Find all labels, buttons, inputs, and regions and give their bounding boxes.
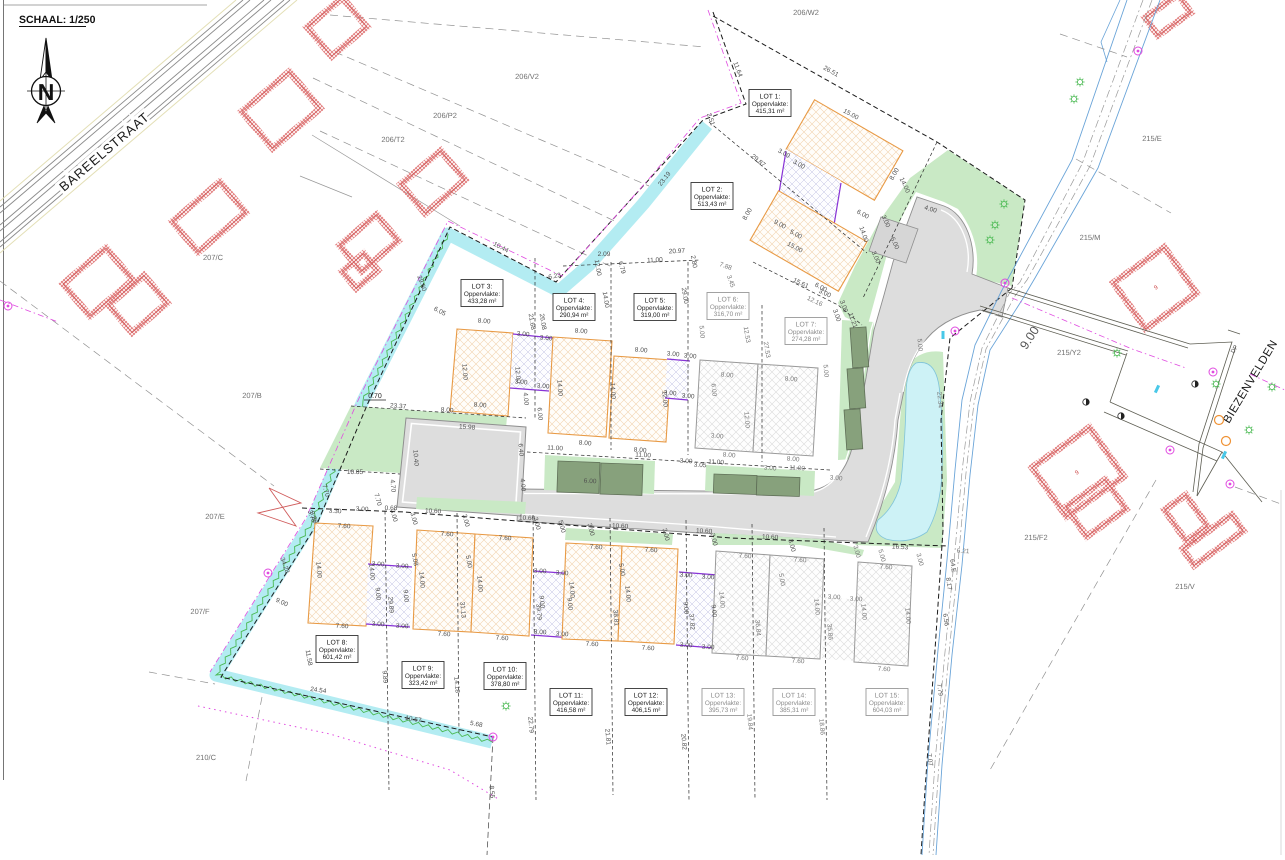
- svg-text:7.60: 7.60: [336, 623, 349, 631]
- svg-text:7.60: 7.60: [441, 531, 454, 539]
- svg-text:3.00: 3.00: [850, 596, 863, 604]
- svg-text:4.00: 4.00: [519, 478, 527, 491]
- svg-text:Oppervlakte:: Oppervlakte:: [553, 700, 589, 707]
- svg-text:6.00: 6.00: [584, 478, 597, 486]
- svg-text:14.00: 14.00: [623, 585, 631, 602]
- svg-text:5.00: 5.00: [698, 325, 706, 338]
- svg-text:604,03 m²: 604,03 m²: [873, 707, 902, 714]
- svg-text:3.00: 3.00: [396, 563, 409, 571]
- svg-text:LOT 1:: LOT 1:: [760, 94, 781, 101]
- svg-text:215/Y2: 215/Y2: [1057, 348, 1081, 357]
- svg-text:3.00: 3.00: [682, 393, 695, 401]
- svg-text:Oppervlakte:: Oppervlakte:: [710, 304, 746, 311]
- svg-text:6.00: 6.00: [710, 383, 718, 396]
- svg-text:7.60: 7.60: [739, 553, 752, 561]
- svg-text:11.00: 11.00: [647, 257, 664, 265]
- svg-text:22.34: 22.34: [935, 391, 943, 408]
- svg-text:3.00: 3.00: [537, 383, 550, 391]
- svg-text:8.00: 8.00: [478, 318, 491, 326]
- svg-text:215/V: 215/V: [1175, 582, 1195, 591]
- svg-text:LOT 9:: LOT 9:: [413, 666, 434, 673]
- svg-text:9.00: 9.00: [537, 595, 545, 609]
- svg-text:6.40: 6.40: [517, 443, 525, 456]
- svg-text:8.55: 8.55: [487, 785, 495, 799]
- svg-text:406,15 m²: 406,15 m²: [632, 707, 661, 714]
- svg-text:3.00: 3.00: [517, 331, 530, 339]
- svg-text:3.00: 3.00: [828, 594, 841, 602]
- svg-text:7.60: 7.60: [586, 641, 599, 649]
- svg-text:3.00: 3.00: [540, 335, 553, 343]
- svg-text:22.79: 22.79: [526, 716, 534, 733]
- svg-text:LOT 3:: LOT 3:: [472, 284, 493, 291]
- svg-text:3.00: 3.00: [396, 623, 409, 631]
- svg-text:20.97: 20.97: [669, 248, 686, 256]
- svg-text:20.82: 20.82: [679, 733, 687, 750]
- svg-text:LOT 2:: LOT 2:: [702, 187, 723, 194]
- svg-text:23.37: 23.37: [390, 402, 407, 410]
- svg-text:10.85: 10.85: [347, 469, 364, 476]
- svg-text:19.84: 19.84: [745, 713, 753, 730]
- svg-text:Oppervlakte:: Oppervlakte:: [752, 101, 788, 108]
- svg-text:290,94 m²: 290,94 m²: [560, 312, 589, 319]
- svg-text:18.86: 18.86: [817, 718, 825, 735]
- svg-text:210/C: 210/C: [196, 753, 217, 762]
- svg-text:207/E: 207/E: [205, 512, 225, 521]
- svg-text:14.00: 14.00: [608, 383, 616, 400]
- svg-text:Oppervlakte:: Oppervlakte:: [464, 291, 500, 298]
- svg-text:LOT 6:: LOT 6:: [718, 297, 739, 304]
- svg-text:3.00: 3.00: [711, 433, 724, 441]
- svg-text:14.00: 14.00: [417, 571, 425, 588]
- svg-text:Oppervlakte:: Oppervlakte:: [694, 194, 730, 201]
- svg-text:206/V2: 206/V2: [515, 72, 539, 81]
- svg-text:11.00: 11.00: [547, 445, 564, 453]
- svg-text:395,73 m²: 395,73 m²: [709, 707, 738, 714]
- svg-text:SCHAAL: 1/250: SCHAAL: 1/250: [19, 14, 96, 26]
- svg-text:5.00: 5.00: [822, 364, 830, 377]
- svg-text:LOT 11:: LOT 11:: [559, 693, 583, 700]
- svg-text:8.00: 8.00: [474, 402, 487, 410]
- svg-text:Oppervlakte:: Oppervlakte:: [405, 673, 441, 680]
- svg-text:Oppervlakte:: Oppervlakte:: [705, 700, 741, 707]
- svg-text:LOT 15:: LOT 15:: [875, 693, 900, 700]
- svg-text:3.00: 3.00: [534, 629, 547, 637]
- svg-text:9.89: 9.89: [380, 670, 388, 684]
- svg-text:31.13: 31.13: [458, 601, 466, 618]
- svg-text:37.82: 37.82: [687, 613, 695, 630]
- svg-text:5.00: 5.00: [915, 338, 923, 352]
- svg-text:9.00: 9.00: [709, 604, 717, 618]
- svg-text:11.00: 11.00: [635, 452, 652, 460]
- svg-text:7.60: 7.60: [878, 666, 891, 674]
- svg-text:601,42 m²: 601,42 m²: [323, 654, 352, 661]
- svg-text:14.18: 14.18: [452, 676, 460, 693]
- svg-text:9.00: 9.00: [681, 601, 689, 615]
- svg-text:207/B: 207/B: [242, 391, 262, 400]
- svg-text:36.84: 36.84: [753, 619, 761, 636]
- svg-text:10.60: 10.60: [425, 508, 442, 516]
- svg-text:14.00: 14.00: [555, 380, 563, 397]
- svg-text:15.98: 15.98: [459, 423, 476, 431]
- svg-text:8.00: 8.00: [635, 347, 648, 355]
- svg-text:12.00: 12.00: [460, 364, 468, 381]
- svg-text:N: N: [38, 79, 55, 105]
- svg-text:7.60: 7.60: [338, 523, 351, 531]
- svg-text:10.60: 10.60: [612, 523, 629, 531]
- svg-text:3.05: 3.05: [694, 462, 707, 470]
- svg-text:3.00: 3.00: [680, 572, 693, 580]
- svg-text:LOT 12:: LOT 12:: [634, 693, 659, 700]
- svg-text:LOT 8:: LOT 8:: [327, 640, 348, 647]
- svg-text:7.60: 7.60: [736, 655, 749, 663]
- svg-text:3.00: 3.00: [556, 570, 569, 578]
- svg-text:8.00: 8.00: [575, 328, 588, 336]
- svg-text:3.00: 3.00: [680, 642, 693, 650]
- svg-text:7.60: 7.60: [590, 544, 603, 552]
- svg-text:206/W2: 206/W2: [793, 8, 819, 17]
- svg-text:3.00: 3.00: [664, 390, 677, 398]
- svg-text:10.40: 10.40: [411, 450, 419, 467]
- svg-text:3.00: 3.00: [830, 475, 843, 483]
- svg-text:3.00: 3.00: [534, 568, 547, 576]
- svg-text:8.00: 8.00: [721, 372, 734, 380]
- svg-text:11.00: 11.00: [708, 459, 725, 467]
- svg-text:3.00: 3.00: [684, 353, 697, 361]
- svg-text:14.00: 14.00: [314, 561, 322, 578]
- svg-text:Oppervlakte:: Oppervlakte:: [637, 305, 673, 312]
- svg-text:10.60: 10.60: [762, 534, 779, 542]
- svg-text:Oppervlakte:: Oppervlakte:: [776, 700, 812, 707]
- svg-text:14.00: 14.00: [859, 603, 867, 620]
- svg-text:16.53: 16.53: [892, 544, 909, 552]
- svg-text:8.00: 8.00: [723, 452, 736, 460]
- svg-text:6.00: 6.00: [536, 407, 544, 420]
- svg-text:Oppervlakte:: Oppervlakte:: [319, 647, 355, 654]
- svg-text:Oppervlakte:: Oppervlakte:: [556, 305, 592, 312]
- svg-text:Oppervlakte:: Oppervlakte:: [869, 700, 905, 707]
- svg-text:7.60: 7.60: [794, 557, 807, 565]
- svg-text:433,28 m²: 433,28 m²: [468, 298, 497, 305]
- svg-text:8.00: 8.00: [787, 456, 800, 464]
- svg-text:206/P2: 206/P2: [433, 111, 457, 120]
- svg-text:3.00: 3.00: [356, 506, 369, 514]
- svg-text:35.86: 35.86: [825, 623, 833, 640]
- svg-text:3.00: 3.00: [764, 465, 777, 473]
- svg-text:Oppervlakte:: Oppervlakte:: [487, 674, 523, 681]
- svg-text:7.60: 7.60: [642, 645, 655, 653]
- svg-text:14.00: 14.00: [717, 591, 725, 608]
- svg-text:7.60: 7.60: [792, 658, 805, 666]
- svg-text:415,31 m²: 415,31 m²: [756, 108, 785, 115]
- svg-text:LOT 7:: LOT 7:: [796, 322, 817, 329]
- svg-text:LOT 4:: LOT 4:: [564, 298, 585, 305]
- svg-text:3.30: 3.30: [329, 508, 342, 516]
- svg-text:9.00: 9.00: [401, 589, 409, 603]
- svg-text:323,42 m²: 323,42 m²: [409, 680, 438, 687]
- svg-text:14.00: 14.00: [567, 581, 575, 598]
- svg-text:7.60: 7.60: [438, 631, 451, 639]
- svg-text:14.00: 14.00: [812, 598, 820, 615]
- svg-text:215/F2: 215/F2: [1024, 533, 1047, 542]
- svg-text:4.00: 4.00: [522, 392, 530, 405]
- svg-text:3.00: 3.00: [702, 644, 715, 652]
- svg-text:12.00: 12.00: [742, 412, 750, 429]
- svg-text:11.00: 11.00: [789, 465, 806, 473]
- svg-text:3.00: 3.00: [556, 631, 569, 639]
- svg-text:378,80 m²: 378,80 m²: [491, 681, 520, 688]
- svg-text:LOT 10:: LOT 10:: [493, 667, 518, 674]
- svg-text:3.00: 3.00: [515, 379, 528, 387]
- svg-text:7.60: 7.60: [880, 564, 893, 572]
- svg-text:215/M: 215/M: [1080, 233, 1101, 242]
- svg-text:7.60: 7.60: [645, 547, 658, 555]
- svg-text:14.00: 14.00: [475, 575, 483, 592]
- svg-text:207/F: 207/F: [190, 607, 210, 616]
- svg-text:21.81: 21.81: [603, 728, 611, 745]
- svg-text:3.00: 3.00: [702, 574, 715, 582]
- svg-text:274,28 m²: 274,28 m²: [792, 336, 821, 343]
- svg-text:3.00: 3.00: [372, 621, 385, 629]
- svg-text:LOT 5:: LOT 5:: [645, 298, 666, 305]
- svg-text:319,00 m²: 319,00 m²: [641, 312, 670, 319]
- svg-text:Oppervlakte:: Oppervlakte:: [628, 700, 664, 707]
- svg-text:513,43 m²: 513,43 m²: [698, 201, 727, 208]
- svg-text:4.70: 4.70: [389, 479, 397, 492]
- svg-text:2.09: 2.09: [598, 251, 611, 258]
- svg-text:7.60: 7.60: [496, 635, 509, 643]
- svg-text:8.00: 8.00: [785, 376, 798, 384]
- svg-text:29.89: 29.89: [386, 596, 394, 613]
- svg-text:Oppervlakte:: Oppervlakte:: [788, 329, 824, 336]
- svg-text:207/C: 207/C: [203, 253, 224, 262]
- svg-text:9.00: 9.00: [565, 597, 573, 611]
- svg-text:0.70: 0.70: [368, 393, 382, 400]
- svg-text:385,31 m²: 385,31 m²: [780, 707, 809, 714]
- svg-text:6.21: 6.21: [957, 548, 970, 556]
- svg-text:8.00: 8.00: [579, 440, 592, 448]
- svg-text:416,58 m²: 416,58 m²: [557, 707, 586, 714]
- svg-text:3.00: 3.00: [372, 561, 385, 569]
- svg-text:LOT 14:: LOT 14:: [782, 693, 807, 700]
- svg-text:3.00: 3.00: [667, 351, 680, 359]
- svg-text:14.00: 14.00: [903, 607, 911, 624]
- svg-text:3.00: 3.00: [680, 458, 693, 466]
- svg-text:LOT 13:: LOT 13:: [711, 693, 736, 700]
- svg-text:206/T2: 206/T2: [381, 135, 404, 144]
- svg-text:38.81: 38.81: [611, 609, 619, 626]
- svg-text:215/E: 215/E: [1142, 134, 1162, 143]
- svg-text:9.00: 9.00: [373, 587, 381, 601]
- svg-text:8.00: 8.00: [441, 407, 454, 415]
- svg-text:7.60: 7.60: [499, 535, 512, 543]
- svg-text:316,70 m²: 316,70 m²: [714, 311, 743, 318]
